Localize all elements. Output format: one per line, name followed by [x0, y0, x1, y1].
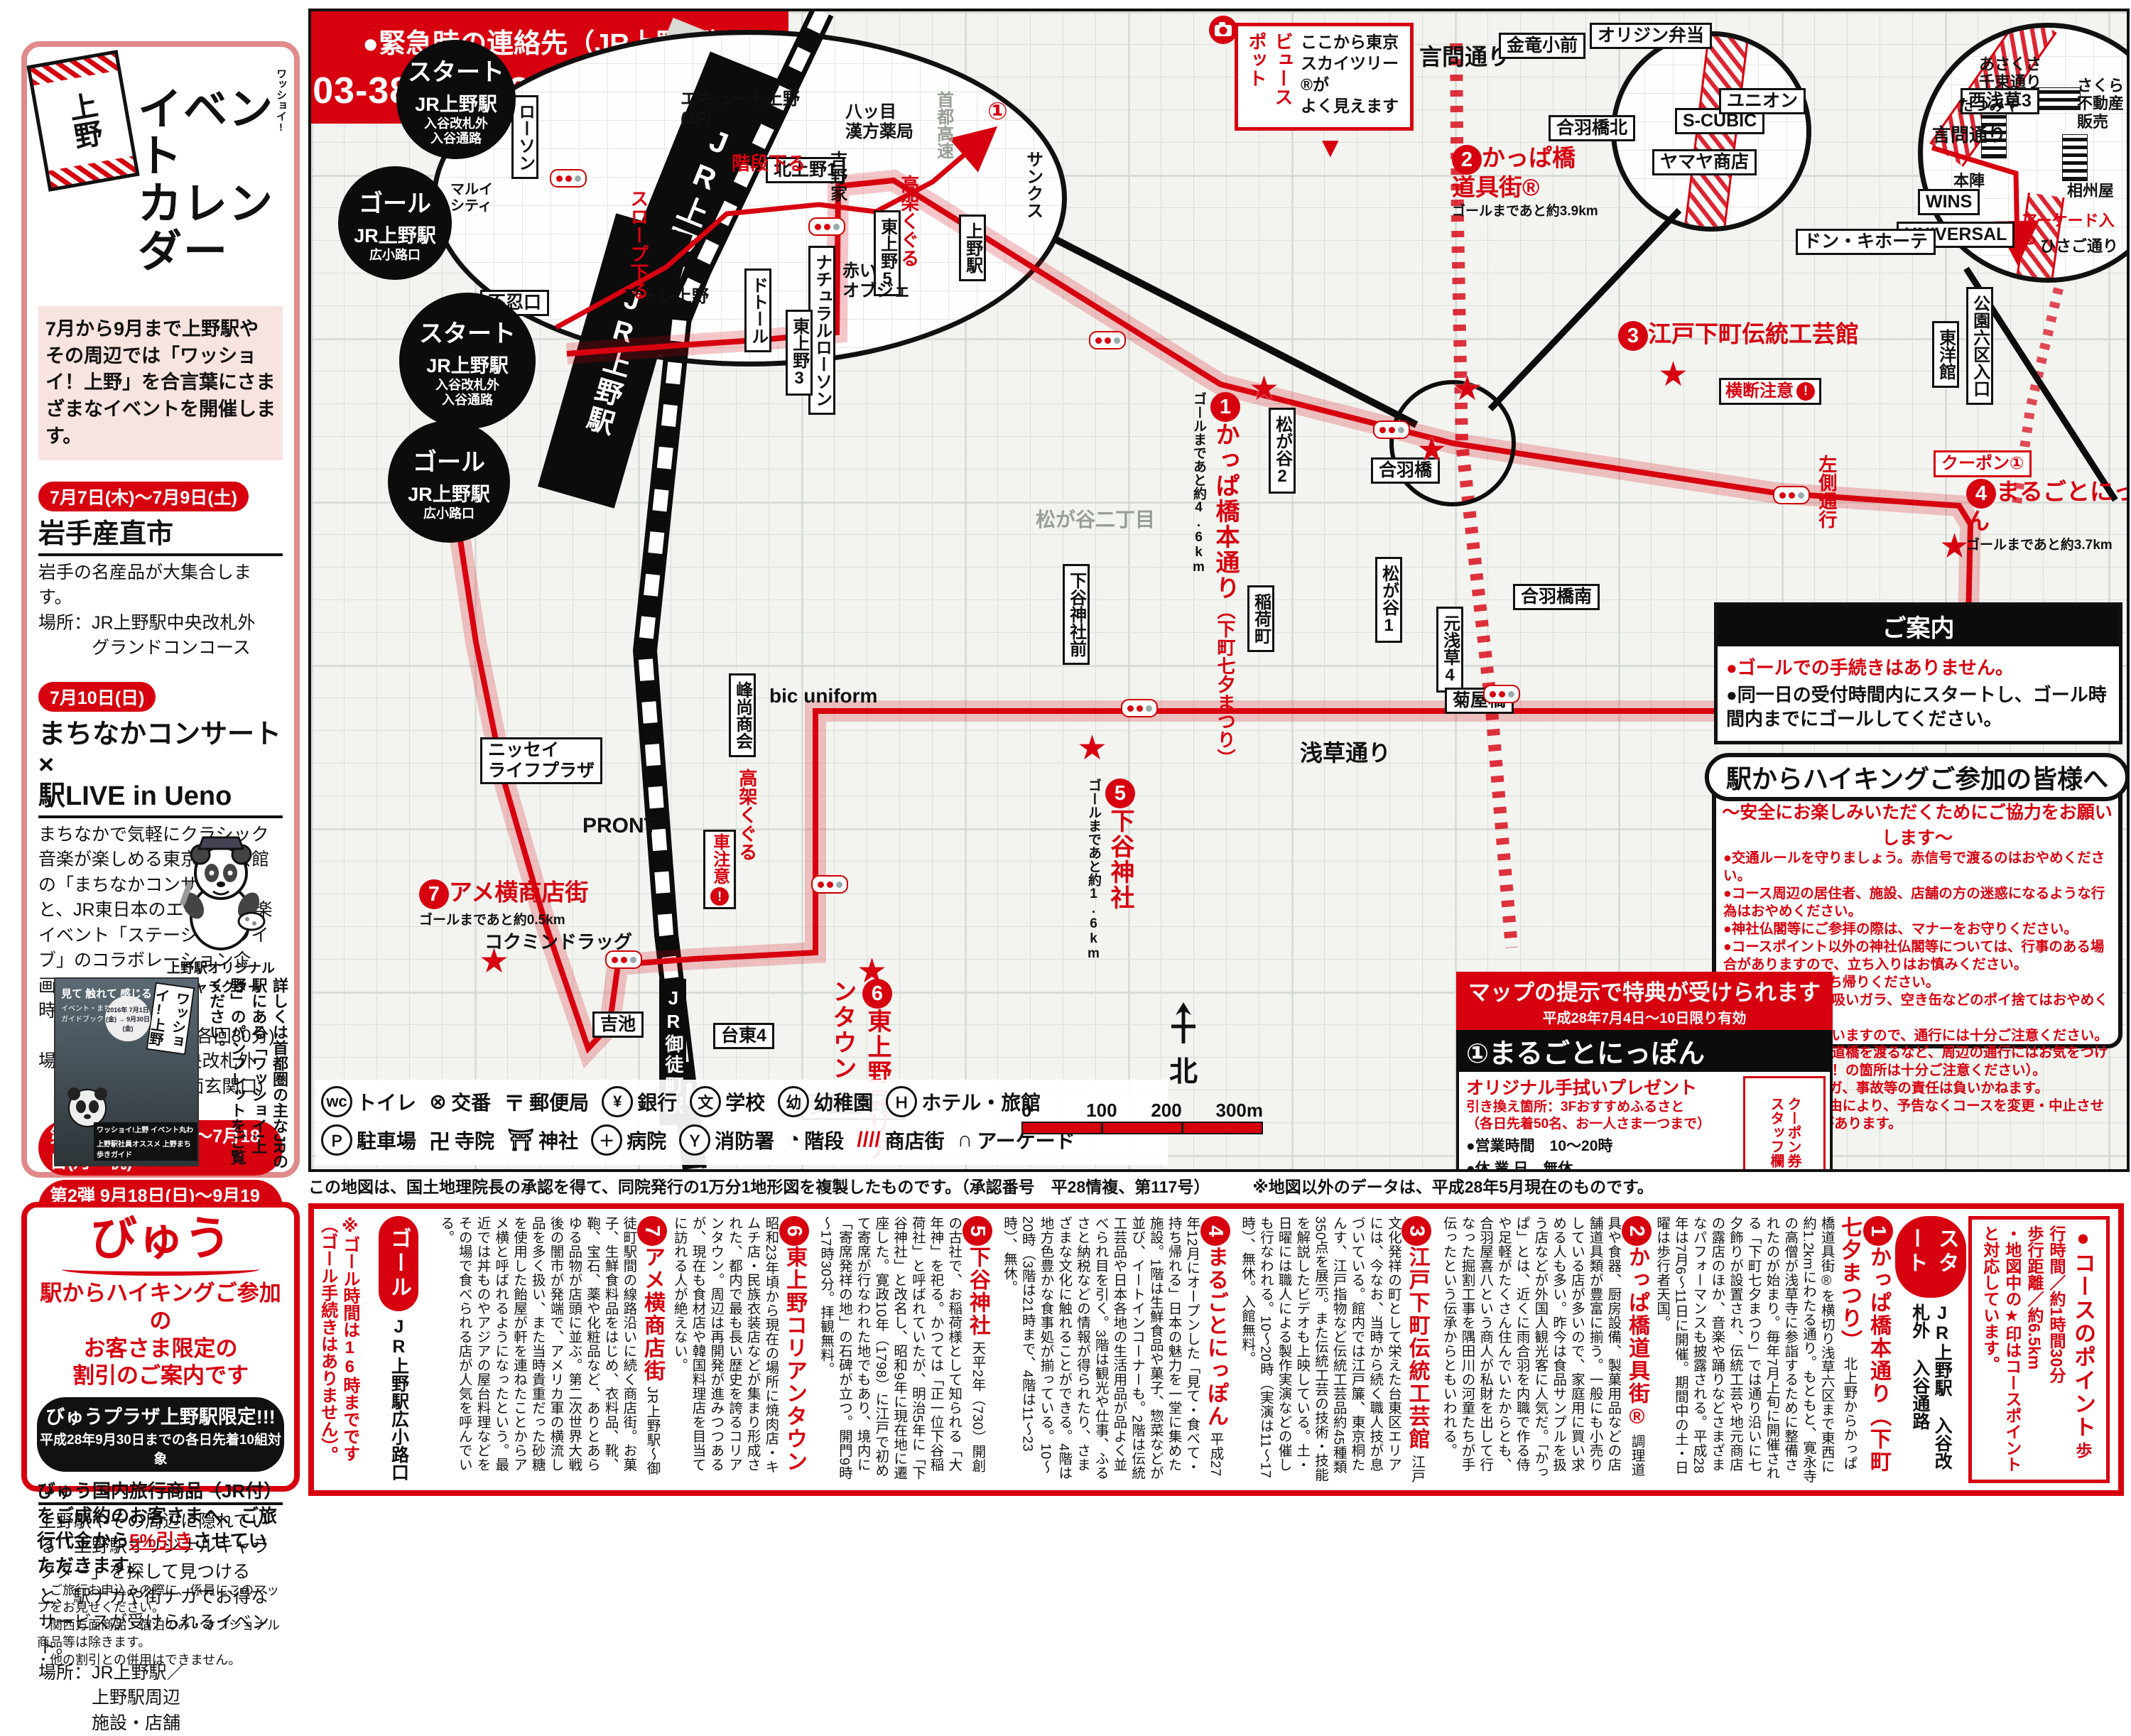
map-approval-note: この地図は、国土地理院長の承認を得て、同院発行の1万分1地形図を複製したものです… — [308, 1178, 1210, 1196]
legend-アーケード-icon: ∩ — [958, 1127, 973, 1154]
coupon-shop-info: ●営業時間 10～20時●休 業 日 無休●Ｔ Ｅ Ｌ 03-3845-0510 — [1466, 1134, 1732, 1173]
goannai-bullet: ●同一日の受付時間内にスタートし、ゴール時間内までにゴールしてください。 — [1726, 683, 2110, 732]
view-note: ・ご旅行お申込みの際に、係員にこのマップをお見せください。 — [37, 1583, 284, 1616]
goal-badge-caption: ゴール — [359, 184, 431, 219]
coupon-exchange-line: 引き換え箇所：3Fおすすめふるさと — [1466, 1099, 1732, 1116]
course-star-marker: ★ — [1658, 358, 1688, 392]
course-point-7: 7アメ横商店街ゴールまであと約0.5km — [419, 879, 611, 928]
hiking-rule: ●コースポイント以外の神社仏閣等については、行事のある場合がありますので、立ち入… — [1716, 938, 2118, 974]
map-label: 松が谷2 — [1269, 408, 1296, 494]
map-label: ドトール — [744, 268, 771, 352]
course-summary-line: 歩行距離／約6.5km — [2025, 1225, 2044, 1369]
course-section-1: 1かっぱ橋本通り（下町七夕まつり）北上野からかっぱ橋道具街®を横切り浅草六区まで… — [1659, 1216, 1893, 1483]
inset3-pointer — [1490, 210, 1679, 409]
map-data-note: ※地図以外のデータは、平成28年5月現在のものです。 — [1252, 1178, 1653, 1196]
inset-goal-badge: ゴール JR上野駅 広小路口 — [338, 166, 452, 280]
course-point-name: 下谷神社 — [1107, 808, 1134, 911]
pamphlet-cover: 見て 触れて 感じる イベント・まち歩き ガイドブック ワッショイ!上野 201… — [54, 977, 199, 1166]
legend-item: wcトイレ — [321, 1086, 416, 1117]
section-body: 調理道具や食器、厨房設備、製菓用品などの店舗道具類が豊富に揃う。一般にも小売りし… — [1441, 1216, 1644, 1479]
course-section-2: 2かっぱ橋道具街®調理道具や食器、厨房設備、製菓用品などの店舗道具類が豊富に揃う… — [1438, 1216, 1651, 1483]
map-label: ① — [987, 98, 1008, 126]
view-logo-swoosh — [62, 1263, 259, 1276]
compass-arrow-icon — [1167, 1002, 1200, 1045]
traffic-signal-icon — [550, 169, 587, 188]
section-body: 昭和23年頃から現在の場所に焼肉店・キムチ店・民族衣装店などが集まり形成された、… — [671, 1216, 779, 1474]
legend-交番-icon: ⊗ — [429, 1088, 447, 1115]
scale-numbers: 0100200300m — [1021, 1100, 1263, 1122]
course-point-name: 江戸下町伝統工芸館 — [1648, 321, 1859, 347]
map-label: 階段下る — [732, 153, 806, 175]
legend-label: 階段 — [804, 1126, 844, 1154]
map-label: 東上野3 — [786, 310, 813, 396]
map-label: WINS — [1918, 189, 1980, 215]
course-star-marker: ★ — [1939, 530, 1970, 564]
inset-start-badge: スタート JR上野駅 入谷改札外 入谷通路 — [396, 40, 516, 159]
course-point-number: 3 — [1618, 321, 1648, 351]
start-badge-caption: スタート — [419, 314, 516, 349]
goannai-bullet: ●ゴールでの手続きはありません。 — [1726, 656, 2110, 680]
course-map: JR上野駅 JR上野駅 — [308, 9, 2130, 1172]
map-label: ローソン — [511, 95, 538, 179]
wasshoi-ueno-logo: 上野 — [26, 50, 139, 192]
map-label: ナチュラルローソン — [808, 246, 835, 415]
coupon-box: マップの提示で特典が受けられます 平成28年7月4日～10日限り有効 ①まるごと… — [1456, 972, 1833, 1172]
map-label: 松が谷二丁目 — [1036, 509, 1155, 531]
course-section-6: 6東上野コリアンタウン昭和23年頃から現在の場所に焼肉店・キムチ店・民族衣装店な… — [674, 1216, 809, 1483]
legend-label: 消防署 — [715, 1126, 774, 1154]
course-details-strip: ●コースのポイント 歩行時間／約1時間30分歩行距離／約6.5km・地図中の★印… — [308, 1203, 2124, 1496]
mascot-block: 上野駅オリジナル キャラクター — [161, 832, 281, 996]
map-label: 合羽橋南 — [1513, 584, 1600, 610]
legend-label: 交番 — [451, 1087, 491, 1116]
event-date-badge: 7月7日(木)～7月9日(土) — [38, 482, 249, 511]
course-point-1: 1かっぱ橋本通り（下町七夕まつり）ゴールまであと約4.6km — [1189, 392, 1243, 767]
view-discount-highlight: 5%引き — [129, 1530, 193, 1551]
start-badge-line1: JR上野駅 — [426, 350, 509, 378]
coupon-header: マップの提示で特典が受けられます 平成28年7月4日～10日限り有効 — [1456, 972, 1833, 1030]
course-star-marker: ★ — [1077, 732, 1107, 766]
course-point-2: 2かっぱ橋 道具街®ゴールまであと約3.9km — [1452, 145, 1615, 219]
legend-item: ⊗交番 — [429, 1087, 491, 1116]
map-label: 元浅草4 — [1436, 607, 1463, 693]
section-number: 2 — [1622, 1216, 1652, 1246]
legend-label: 商店街 — [885, 1126, 945, 1154]
start-badge-line2: 入谷改札外 入谷通路 — [435, 378, 499, 407]
hiking-rule: ●コース周辺の居住者、施設、店舗の方の迷惑になるような行為はおやめください。 — [1716, 885, 2118, 921]
course-star-marker: ★ — [1249, 372, 1279, 406]
view-badge-line2: 平成28年9月30日までの各日先着10組対象 — [40, 1429, 281, 1468]
logo-checker-bottom — [49, 156, 136, 188]
section-body: 天平2年（730）開創の古社で、お稲荷様として知られる「大年神」を祀る。かつては… — [818, 1216, 985, 1480]
course-point-number: 7 — [419, 879, 449, 909]
hiking-box-subtitle: ～安全にお楽しみいただくためにご協力をお願いします～ — [1716, 798, 2118, 850]
map-label: 高架くぐる — [736, 769, 757, 861]
event-body: 岩手の名産品が大集合します。 場所：JR上野駅中央改札外 グランドコンコース — [38, 560, 283, 661]
course-summary-line: ・地図中の★印はコースポイントと対応しています。 — [1981, 1225, 2022, 1472]
scale-tick-label: 200 — [1151, 1100, 1215, 1122]
coupon-present-line: オリジナル手拭いプレゼント — [1466, 1078, 1732, 1099]
goal-badge-line2: 広小路口 — [423, 506, 475, 521]
legend-郵便局-icon: 〒 — [504, 1088, 525, 1115]
scale-tick-label: 0 — [1021, 1100, 1086, 1122]
section-body: 北上野からかっぱ橋道具街®を横切り浅草六区まで東西に約1.2kmにわたる通り。も… — [1654, 1216, 1857, 1483]
event-title: まちなかコンサート× 駅LIVE in Ueno — [38, 720, 283, 818]
start-badge-line1: JR上野駅 — [415, 89, 497, 116]
section-body: 平成27年12月にオープンした「見て・食べて・持ち帰れる」日本の魅力を一堂に集め… — [1002, 1216, 1223, 1480]
start-oval: スタート — [1895, 1216, 1966, 1298]
section-number: 3 — [1401, 1216, 1431, 1246]
course-section-4: 4まるごとにっぽん平成27年12月にオープンした「見て・食べて・持ち帰れる」日本… — [999, 1216, 1230, 1483]
map-label: 松が谷1 — [1375, 557, 1402, 643]
traffic-signal-icon — [1373, 421, 1410, 439]
legend-item: Ｈホテル・旅館 — [886, 1086, 1041, 1117]
view-spot-text: ここから東京スカイツリー®が よく見えます — [1301, 32, 1404, 121]
view-note: ・関西方面商品・宿泊のみ・オプショナル商品等は除きます。 — [37, 1617, 284, 1651]
hiking-rule: ●神社仏閣等にご参拝の際は、マナーをお守りください。 — [1716, 921, 2118, 938]
map-label: 金竜小前 — [1499, 33, 1585, 59]
map-label: ユニオン — [1719, 88, 1806, 114]
view-notes: ・ご旅行お申込みの際に、係員にこのマップをお見せください。・関西方面商品・宿泊の… — [37, 1583, 284, 1669]
view-discount-panel: びゅう 駅からハイキングご参加の お客さま限定の 割引のご案内です びゅうプラザ… — [21, 1202, 300, 1492]
distance-to-goal: ゴールまであと約1.6km — [1084, 779, 1103, 961]
legend-label: 寺院 — [455, 1126, 494, 1154]
legend-ホテル・旅館-icon: Ｈ — [886, 1086, 917, 1117]
section-title: 下谷神社 — [966, 1246, 989, 1337]
compass-label: 北 — [1167, 1048, 1200, 1090]
map-label: 公園六区入口 — [1966, 287, 1993, 405]
distance-to-goal: ゴールまであと約4.6km — [1189, 392, 1208, 767]
course-point-number: 1 — [1210, 392, 1240, 422]
event-dates: 7月7日(木)～7月9日(土) — [38, 479, 283, 514]
map-label: たつみや — [1958, 97, 2020, 114]
coupon-shop-name: ①まるごとにっぽん — [1456, 1030, 1833, 1072]
map-label: サンクス — [1023, 151, 1043, 219]
view-note: ・他の割引との併用はできません。 — [37, 1652, 284, 1669]
view-badge-line1: びゅうプラザ上野駅限定!!! — [40, 1401, 281, 1429]
course-point-number: 6 — [862, 979, 892, 1009]
course-point-4: 4まるごとにっぽんゴールまであと約3.7km — [1966, 479, 2130, 553]
course-point-number: 5 — [1105, 779, 1135, 808]
map-label: bic uniform — [769, 685, 877, 707]
legend-病院-icon: ＋ — [591, 1124, 622, 1156]
start-badge-caption: スタート — [408, 53, 504, 87]
traffic-signal-icon — [1483, 685, 1520, 703]
course-point-title: ●コースのポイント — [2071, 1225, 2095, 1439]
legend-label: 神社 — [538, 1126, 578, 1154]
course-point-summary-box: ●コースのポイント 歩行時間／約1時間30分歩行距離／約6.5km・地図中の★印… — [1968, 1216, 2110, 1483]
legend-label: 銀行 — [637, 1087, 677, 1116]
map-label: 赤い オブジェ — [842, 261, 911, 300]
legend-item: ////商店街 — [857, 1126, 944, 1154]
coupon-stub-text: クーポン券・ スタッフ欄 — [1767, 1097, 1801, 1172]
distance-to-goal: ゴールまであと約3.9km — [1452, 200, 1615, 219]
map-label: 上野駅 — [959, 215, 986, 281]
map-label: 浅草通り — [1300, 740, 1391, 766]
course-point-5: 5下谷神社ゴールまであと約1.6km — [1084, 779, 1138, 961]
traffic-signal-icon — [1089, 331, 1126, 349]
map-label: 東洋館 — [1932, 321, 1959, 388]
distance-to-goal: ゴールまであと約0.5km — [419, 909, 611, 928]
section-number: 6 — [779, 1216, 809, 1246]
legend-駐車場-icon: Ｐ — [321, 1124, 352, 1156]
traffic-signal-icon — [811, 875, 848, 894]
map-label: ニッセイ ライフプラザ — [480, 737, 602, 784]
legend-item: 〒郵便局 — [504, 1087, 589, 1116]
map-label: 八ッ目 漢方薬局 — [845, 102, 913, 141]
map-scale-bar: 0100200300m — [1021, 1100, 1263, 1134]
legend-階段-icon: ◔ — [787, 1127, 800, 1154]
course-goal-column: ゴール JR上野駅広小路口 — [368, 1216, 429, 1483]
legend-label: 幼稚園 — [813, 1087, 873, 1116]
goal-badge-line1: JR上野駅 — [354, 220, 436, 248]
map-label: 言問通り — [1419, 44, 1510, 70]
pamphlet-chip2: 上野駅社員オススメ 上野まち歩きガイド — [94, 1136, 197, 1161]
event-title: 岩手産直市 — [38, 519, 283, 556]
traffic-signal-icon — [808, 217, 845, 236]
coupon-info-line: ●営業時間 10～20時 — [1466, 1134, 1732, 1156]
map-label: エキュート上野 (3F) — [680, 89, 800, 129]
scale-tick-label: 300m — [1216, 1100, 1264, 1122]
legend-幼稚園-icon: 幼 — [778, 1086, 809, 1117]
view-limited-badge: びゅうプラザ上野駅限定!!! 平成28年9月30日までの各日先着10組対象 — [37, 1397, 284, 1472]
legend-item: ＋病院 — [591, 1124, 666, 1156]
map-label: 高架くぐる — [898, 175, 919, 267]
start-badge-line2: 入谷改札外 入谷通路 — [424, 116, 488, 146]
map-label: 稲荷町 — [1247, 585, 1274, 652]
logo-main-text: 上野 — [64, 90, 102, 151]
legend-消防署-icon: Ｙ — [679, 1124, 710, 1156]
map-goal-badge: ゴール JR上野駅 広小路口 — [388, 421, 510, 543]
course-start-column: スタート JR上野駅 入谷改札外 入谷通路 — [1900, 1216, 1961, 1483]
course-section-5: 5下谷神社天平2年（730）開創の古社で、お稲荷様として知られる「大年神」を祀る… — [816, 1216, 992, 1483]
map-label: スロープ下る — [627, 189, 649, 300]
map-label: アトレ上野 — [624, 287, 709, 307]
map-label: 吉池 — [592, 1011, 644, 1038]
pamphlet-logo: ワッショイ!上野 — [146, 982, 195, 1056]
goal-badge-line1: JR上野駅 — [408, 479, 490, 506]
map-label: あさくさ 千束通り — [1979, 55, 2041, 92]
goal-time-note: ※ゴール時間は16時までです（ゴール手続きはありません）。 — [316, 1216, 360, 1483]
event-calendar-intro: 7月から9月まで上野駅やその周辺では「ワッショイ！上野」を合言葉にさまざまなイベ… — [38, 306, 283, 460]
map-label: 左側通行 — [1816, 455, 1837, 528]
start-location: JR上野駅 入谷改札外 入谷通路 — [1909, 1303, 1953, 1483]
section-title: かっぱ橋道具街® — [1625, 1246, 1649, 1430]
map-label: ひさご通り — [2040, 237, 2118, 255]
view-heading: 駅からハイキングご参加の お客さま限定の 割引のご案内です — [37, 1280, 284, 1390]
traffic-signal-icon — [605, 950, 642, 969]
map-label: マルイ シティ — [450, 182, 493, 215]
map-label: 言問通り — [1932, 125, 2006, 146]
north-compass: 北 — [1167, 1002, 1200, 1090]
view-spot-box: ビュースポット ここから東京スカイツリー®が よく見えます — [1235, 23, 1414, 131]
map-label: 車注意! — [703, 830, 736, 909]
pamphlet-dates: 2016年 7月1日(金) → 9月30日(金) — [105, 996, 151, 1041]
hiking-box-title: 駅からハイキングご参加の皆様へ — [1705, 753, 2130, 801]
legend-label: 学校 — [725, 1087, 765, 1116]
section-title: まるごとにっぽん — [1204, 1246, 1227, 1428]
legend-label: 郵便局 — [529, 1087, 589, 1116]
goal-badge-line2: 広小路口 — [369, 248, 421, 263]
view-body: びゅう国内旅行商品（JR付）をご成約のお客さまへ、ご旅行代金から5%引きさせてい… — [37, 1479, 284, 1578]
view-logo: びゅう — [37, 1215, 284, 1262]
goannai-info-box: ご案内 ●ゴールでの手続きはありません。●同一日の受付時間内にスタートし、ゴール… — [1714, 602, 2122, 744]
course-section-7: 7アメ横商店街JR上野駅～御徒町駅間の線路沿いに続く商店街。お菓子、生鮮食料品を… — [436, 1216, 667, 1483]
hiking-rule: ●交通ルールを守りましょう。赤信号で渡るのはおやめください。 — [1716, 850, 2118, 885]
section-title: 江戸下町伝統工芸館 — [1406, 1246, 1429, 1450]
map-start-badge: スタート JR上野駅 入谷改札外 入谷通路 — [399, 293, 536, 429]
section-number: 7 — [637, 1216, 667, 1246]
legend-商店街-icon: //// — [857, 1127, 880, 1154]
section-number: 4 — [1200, 1216, 1230, 1246]
coupon-header-text: マップの提示で特典が受けられます — [1456, 975, 1833, 1007]
legend-item: ¥銀行 — [602, 1086, 677, 1117]
map-label: PRONT — [582, 814, 657, 839]
scale-line — [1021, 1122, 1263, 1134]
view-spot-label: ビュースポット — [1244, 32, 1296, 121]
course-section-3: 3江戸下町伝統工芸館江戸文化発祥の町として栄えた台東区エリアには、今なお、当時か… — [1237, 1216, 1432, 1483]
map-label: 本陣 — [1953, 172, 1985, 190]
legend-寺院-icon: 卍 — [429, 1127, 450, 1154]
map-label: クーポン① — [1934, 450, 2032, 477]
coupon-details: オリジナル手拭いプレゼント 引き換え箇所：3Fおすすめふるさと （各日先着50名… — [1459, 1072, 1739, 1172]
event-dates: 7月10日(日) — [38, 680, 283, 714]
section-body: 江戸文化発祥の町として栄えた台東区エリアには、今なお、当時から続く職人技が息づい… — [1240, 1216, 1425, 1483]
map-label: 下谷神社前 — [1063, 564, 1090, 665]
course-star-marker: ★ — [1452, 372, 1482, 406]
legend-item: ⛩神社 — [507, 1126, 578, 1154]
legend-item: 幼幼稚園 — [778, 1086, 873, 1117]
section-title: アメ横商店街 — [641, 1246, 664, 1382]
course-point-name: アメ横商店街 — [449, 879, 588, 906]
coupon-stub: クーポン券・ スタッフ欄 — [1743, 1076, 1826, 1172]
map-label: 吉野家 — [827, 151, 847, 202]
warning-text: 車注意 — [710, 833, 730, 884]
coupon-limit-line: （各日先着50名、お一人さま一つまで） — [1466, 1116, 1732, 1133]
event-calendar-title: イベント カレンダー — [138, 87, 283, 277]
map-label: 峰尚商会 — [729, 673, 756, 757]
caution-icon: ! — [1796, 382, 1815, 401]
map-label: 台東4 — [713, 1023, 774, 1049]
course-point-3: 3江戸下町伝統工芸館 — [1618, 321, 1874, 351]
flyer-page: { "event_panel": { "logo_main": "上野", "l… — [0, 0, 2131, 1511]
pamphlet-footer-note: 詳しくは首都圏の主なJRの駅にある「ワッショイ!上野」のパンフレットをご覧くださ… — [205, 977, 290, 1176]
event-calendar-panel: 上野 ワッショイ! イベント カレンダー 7月から9月まで上野駅やその周辺では「… — [21, 41, 300, 1178]
traffic-signal-icon — [1121, 699, 1158, 717]
logo-checker-top — [31, 54, 117, 85]
course-point-number: 4 — [1966, 479, 1996, 509]
legend-銀行-icon: ¥ — [602, 1086, 633, 1117]
course-star-marker: ★ — [479, 945, 509, 979]
event-item: 7月7日(木)～7月9日(土)岩手産直市岩手の名産品が大集合します。 場所：JR… — [38, 479, 283, 661]
course-star-marker: ★ — [1416, 433, 1447, 467]
caution-icon: ! — [710, 887, 729, 906]
map-source-note: この地図は、国土地理院長の承認を得て、同院発行の1万分1地形図を複製したものです… — [308, 1173, 2124, 1198]
coupon-valid-text: 平成28年7月4日～10日限り有効 — [1456, 1007, 1833, 1027]
goal-oval: ゴール — [379, 1216, 418, 1311]
legend-label: トイレ — [357, 1087, 416, 1116]
course-point-subname: （下町七夕まつり） — [1215, 601, 1236, 767]
coupon-info-line: ●休 業 日 無休 — [1466, 1157, 1732, 1173]
legend-label: 病院 — [627, 1126, 666, 1154]
logo-side-text: ワッショイ! — [273, 68, 288, 134]
legend-item: Ｐ駐車場 — [321, 1124, 416, 1156]
course-point-name: かっぱ橋本通り — [1212, 422, 1239, 601]
goal-location: JR上野駅広小路口 — [387, 1317, 409, 1481]
scale-tick-label: 100 — [1086, 1100, 1151, 1122]
traffic-signal-icon — [1773, 486, 1810, 504]
map-label: 相州屋 — [2067, 182, 2114, 200]
panda-mascot-illustration — [168, 832, 274, 953]
section-title: 東上野コリアンタウン — [783, 1246, 806, 1473]
event-date-badge: 7月10日(日) — [38, 682, 156, 712]
section-number: 5 — [963, 1216, 992, 1246]
map-label: さくら 不動産販売 — [2077, 77, 2127, 131]
map-label: ヤマヤ商店 — [1652, 149, 1757, 175]
course-point-number: 2 — [1452, 145, 1482, 175]
legend-学校-icon: 文 — [690, 1086, 721, 1117]
coupon-body: オリジナル手拭いプレゼント 引き換え箇所：3Fおすすめふるさと （各日先着50名… — [1456, 1072, 1833, 1172]
map-label: オリジン弁当 — [1590, 23, 1712, 49]
section-number: 1 — [1863, 1216, 1893, 1246]
map-label: 合羽橋北 — [1549, 115, 1635, 141]
map-label: 首都高速 — [933, 91, 953, 159]
view-spot-arrow: ▼ — [1316, 132, 1345, 164]
goannai-title: ご案内 — [1718, 606, 2119, 646]
map-label: ドン・キホーテ — [1796, 229, 1936, 255]
legend-item: 卍寺院 — [429, 1126, 494, 1154]
legend-トイレ-icon: wc — [321, 1086, 352, 1117]
section-body: JR上野駅～御徒町駅間の線路沿いに続く商店街。お菓子、生鮮食料品をはじめ、衣料品… — [438, 1216, 660, 1475]
legend-label: 駐車場 — [357, 1126, 416, 1154]
legend-item: ◔階段 — [787, 1126, 844, 1154]
map-label: 横断注意! — [1719, 378, 1821, 405]
legend-神社-icon: ⛩ — [507, 1127, 534, 1154]
goal-badge-caption: ゴール — [413, 443, 485, 477]
camera-icon — [1208, 14, 1239, 45]
warning-text: 横断注意 — [1725, 381, 1794, 401]
distance-to-goal: ゴールまであと約3.7km — [1966, 534, 2130, 553]
legend-item: 文学校 — [690, 1086, 765, 1117]
legend-item: Ｙ消防署 — [679, 1124, 774, 1156]
goannai-body: ●ゴールでの手続きはありません。●同一日の受付時間内にスタートし、ゴール時間内ま… — [1718, 646, 2119, 741]
